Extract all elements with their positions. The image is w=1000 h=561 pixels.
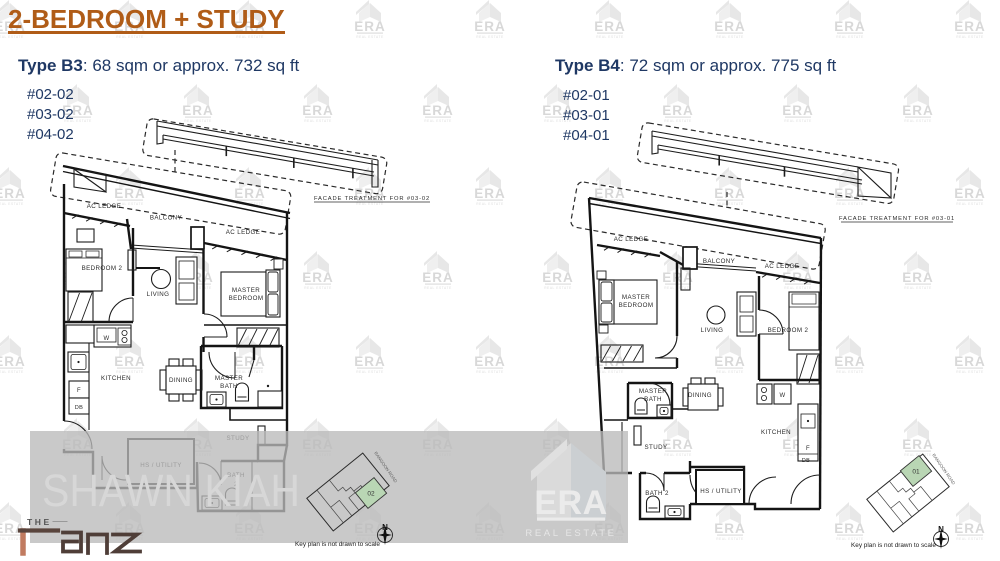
svg-text:REAL ESTATE: REAL ESTATE	[424, 119, 452, 123]
svg-text:REAL ESTATE: REAL ESTATE	[356, 202, 384, 206]
svg-text:BEDROOM: BEDROOM	[229, 295, 264, 302]
svg-text:REAL ESTATE: REAL ESTATE	[596, 370, 624, 374]
svg-text:REAL ESTATE: REAL ESTATE	[0, 35, 24, 39]
svg-text:ERA: ERA	[474, 186, 506, 201]
svg-text:MASTER: MASTER	[232, 287, 260, 294]
svg-text:Key plan is not drawn to scale: Key plan is not drawn to scale	[851, 542, 936, 549]
svg-text:ERA: ERA	[714, 19, 746, 34]
svg-text:ERA: ERA	[954, 19, 986, 34]
svg-text:ERA: ERA	[902, 270, 934, 285]
svg-text:HS / UTILITY: HS / UTILITY	[700, 488, 742, 495]
svg-text:ERA: ERA	[714, 186, 746, 201]
svg-text:MASTER: MASTER	[622, 294, 650, 301]
svg-text:N: N	[938, 525, 944, 534]
svg-text:ERA: ERA	[542, 270, 574, 285]
svg-text:ERA: ERA	[0, 354, 26, 369]
svg-text:ERA: ERA	[782, 103, 814, 118]
svg-text:REAL ESTATE: REAL ESTATE	[116, 370, 144, 374]
svg-text:BEDROOM: BEDROOM	[619, 302, 654, 309]
svg-text:ERA: ERA	[234, 186, 266, 201]
svg-text:REAL ESTATE: REAL ESTATE	[116, 35, 144, 39]
svg-text:AC LEDGE: AC LEDGE	[614, 236, 649, 243]
svg-text:AC LEDGE: AC LEDGE	[226, 229, 261, 236]
svg-text:REAL ESTATE: REAL ESTATE	[664, 453, 692, 457]
svg-text:SHAWN KIAH: SHAWN KIAH	[42, 465, 300, 516]
svg-text:ERA: ERA	[954, 186, 986, 201]
svg-text:REAL ESTATE: REAL ESTATE	[904, 286, 932, 290]
svg-text:ERA: ERA	[834, 354, 866, 369]
svg-text:REAL ESTATE: REAL ESTATE	[236, 35, 264, 39]
svg-text:F: F	[77, 388, 81, 394]
svg-text:REAL ESTATE: REAL ESTATE	[716, 370, 744, 374]
svg-text:F: F	[806, 446, 810, 452]
svg-text:ERA: ERA	[534, 484, 607, 522]
svg-text:ERA: ERA	[902, 437, 934, 452]
svg-text:ERA: ERA	[422, 270, 454, 285]
svg-text:REAL ESTATE: REAL ESTATE	[525, 528, 616, 539]
svg-text:AC LEDGE: AC LEDGE	[765, 263, 800, 270]
svg-text:BATH: BATH	[644, 396, 662, 403]
svg-text:N: N	[382, 523, 388, 532]
svg-text:REAL ESTATE: REAL ESTATE	[784, 286, 812, 290]
svg-text:REAL ESTATE: REAL ESTATE	[476, 35, 504, 39]
svg-text:REAL ESTATE: REAL ESTATE	[184, 119, 212, 123]
svg-text:ERA: ERA	[954, 354, 986, 369]
svg-text:REAL ESTATE: REAL ESTATE	[0, 202, 24, 206]
svg-text:FACADE TREATMENT FOR #03-01: FACADE TREATMENT FOR #03-01	[839, 216, 955, 222]
svg-text:DINING: DINING	[169, 377, 193, 384]
svg-text:ERA: ERA	[354, 19, 386, 34]
svg-text:ERA: ERA	[302, 270, 334, 285]
svg-text:ERA: ERA	[422, 103, 454, 118]
svg-text:REAL ESTATE: REAL ESTATE	[956, 537, 984, 541]
svg-text:DB: DB	[802, 458, 811, 464]
svg-text:BEDROOM 2: BEDROOM 2	[82, 265, 123, 272]
svg-text:AC LEDGE: AC LEDGE	[87, 203, 122, 210]
svg-text:ERA: ERA	[834, 19, 866, 34]
svg-text:REAL ESTATE: REAL ESTATE	[784, 119, 812, 123]
svg-text:BALCONY: BALCONY	[703, 258, 735, 265]
svg-text:REAL ESTATE: REAL ESTATE	[836, 202, 864, 206]
svg-text:W: W	[103, 336, 109, 342]
svg-text:BATH: BATH	[220, 383, 238, 390]
svg-text:REAL ESTATE: REAL ESTATE	[356, 370, 384, 374]
svg-text:REAL ESTATE: REAL ESTATE	[956, 370, 984, 374]
svg-text:MASTER: MASTER	[639, 388, 667, 395]
svg-text:ERA: ERA	[834, 521, 866, 536]
svg-text:ERA: ERA	[954, 521, 986, 536]
svg-text:ERA: ERA	[714, 354, 746, 369]
svg-text:Key plan is not drawn to scale: Key plan is not drawn to scale	[295, 541, 380, 548]
svg-text:ERA: ERA	[902, 103, 934, 118]
svg-text:ERA: ERA	[714, 521, 746, 536]
svg-text:REAL ESTATE: REAL ESTATE	[836, 370, 864, 374]
svg-text:KITCHEN: KITCHEN	[761, 429, 791, 436]
svg-text:REAL ESTATE: REAL ESTATE	[836, 35, 864, 39]
svg-text:01: 01	[912, 469, 920, 476]
svg-text:REAL ESTATE: REAL ESTATE	[956, 202, 984, 206]
svg-text:REAL ESTATE: REAL ESTATE	[664, 119, 692, 123]
svg-text:LIVING: LIVING	[701, 327, 724, 334]
svg-text:REAL ESTATE: REAL ESTATE	[716, 537, 744, 541]
svg-text:REAL ESTATE: REAL ESTATE	[304, 286, 332, 290]
svg-text:ERA: ERA	[474, 354, 506, 369]
svg-text:REAL ESTATE: REAL ESTATE	[0, 370, 24, 374]
svg-text:FACADE TREATMENT FOR #03-02: FACADE TREATMENT FOR #03-02	[314, 196, 430, 202]
svg-text:BEDROOM 2: BEDROOM 2	[768, 327, 809, 334]
svg-text:DB: DB	[75, 405, 84, 411]
svg-text:REAL ESTATE: REAL ESTATE	[544, 286, 572, 290]
svg-text:REAL ESTATE: REAL ESTATE	[836, 537, 864, 541]
svg-text:DINING: DINING	[688, 392, 712, 399]
svg-text:STUDY: STUDY	[645, 444, 668, 451]
svg-text:REAL ESTATE: REAL ESTATE	[716, 202, 744, 206]
svg-text:ERA: ERA	[834, 186, 866, 201]
svg-text:ERA: ERA	[474, 19, 506, 34]
svg-text:W: W	[779, 393, 785, 399]
svg-text:ERA: ERA	[0, 186, 26, 201]
svg-text:REAL ESTATE: REAL ESTATE	[476, 370, 504, 374]
svg-text:REAL ESTATE: REAL ESTATE	[304, 119, 332, 123]
svg-text:REAL ESTATE: REAL ESTATE	[356, 35, 384, 39]
svg-text:REAL ESTATE: REAL ESTATE	[716, 35, 744, 39]
svg-text:ERA: ERA	[182, 103, 214, 118]
svg-text:ERA: ERA	[302, 103, 334, 118]
svg-text:ERA: ERA	[354, 354, 386, 369]
svg-text:ERA: ERA	[234, 354, 266, 369]
svg-text:REAL ESTATE: REAL ESTATE	[0, 537, 24, 541]
svg-text:REAL ESTATE: REAL ESTATE	[476, 202, 504, 206]
svg-text:LIVING: LIVING	[147, 291, 170, 298]
svg-text:ERA: ERA	[114, 354, 146, 369]
svg-text:KITCHEN: KITCHEN	[101, 375, 131, 382]
svg-text:REAL ESTATE: REAL ESTATE	[424, 286, 452, 290]
svg-text:BALCONY: BALCONY	[150, 215, 182, 222]
svg-text:REAL ESTATE: REAL ESTATE	[956, 35, 984, 39]
svg-text:ERA: ERA	[662, 103, 694, 118]
svg-text:REAL ESTATE: REAL ESTATE	[596, 35, 624, 39]
svg-text:02: 02	[367, 491, 375, 498]
svg-text:THE: THE	[27, 517, 52, 527]
svg-text:BATH 2: BATH 2	[645, 490, 669, 497]
svg-text:ERA: ERA	[594, 19, 626, 34]
svg-text:REAL ESTATE: REAL ESTATE	[904, 119, 932, 123]
svg-text:MASTER: MASTER	[215, 375, 243, 382]
